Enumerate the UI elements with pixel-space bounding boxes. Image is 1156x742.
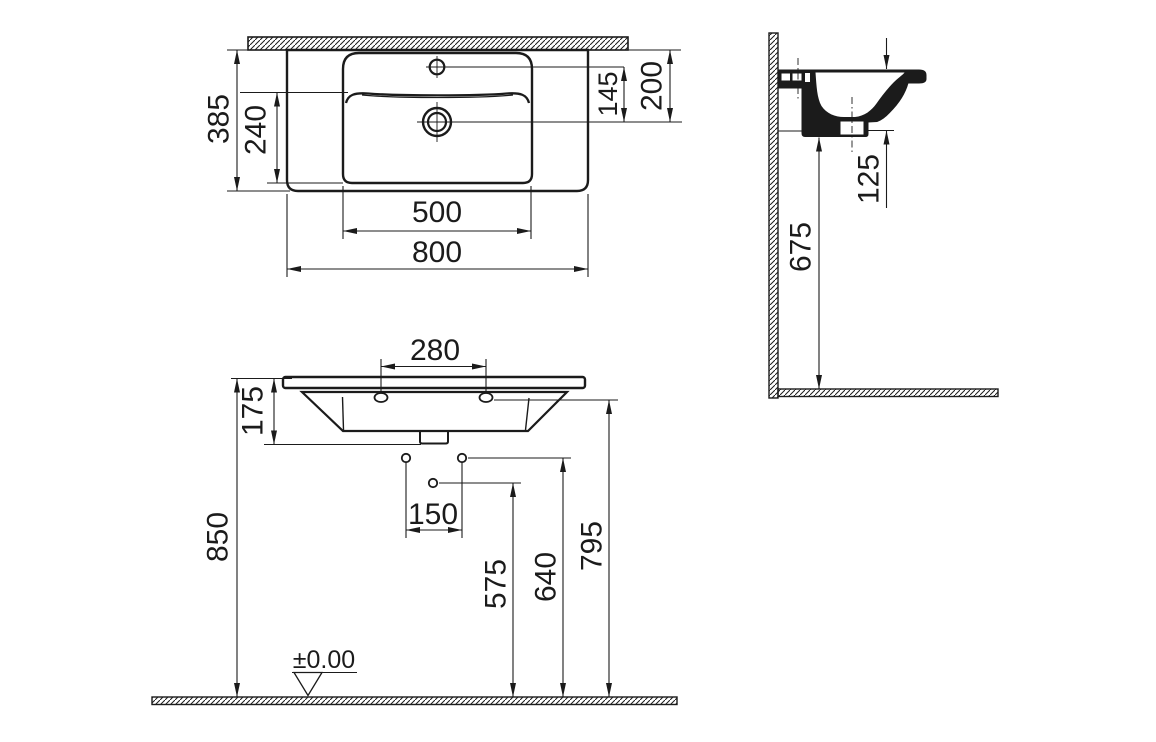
technical-drawing-canvas: 385 240 145 200 500 800 [0, 0, 1156, 742]
dim-640-label: 640 [530, 552, 563, 602]
mount-hole-right [458, 454, 466, 462]
dim-850-label: 850 [202, 512, 235, 562]
mount-hole-left [402, 454, 410, 462]
dim-800-label: 800 [412, 236, 462, 269]
dim-795-label: 795 [576, 521, 609, 571]
floor-datum-label: ±0.00 [293, 646, 355, 674]
floor-datum-symbol [292, 673, 357, 696]
rim-slot [805, 73, 810, 82]
floor-section-side-view [778, 389, 998, 397]
wall-section-side-view [769, 33, 778, 398]
front-view: 280 175 850 150 575 640 795 [152, 334, 677, 705]
dim-500-label: 500 [412, 196, 462, 229]
dim-150-label: 150 [408, 498, 458, 531]
drain-pipe-hole [429, 479, 437, 487]
floor-section-front-view [152, 697, 677, 705]
dim-240-label: 240 [240, 105, 273, 155]
dim-125-label: 125 [853, 154, 886, 204]
dim-280-label: 280 [410, 334, 460, 367]
datum-triangle-icon [294, 673, 322, 696]
washbasin-dimension-drawing: 385 240 145 200 500 800 [0, 0, 1156, 742]
wall-section-top-view [248, 37, 628, 50]
dim-675-label: 675 [785, 222, 818, 272]
dim-145-label: 145 [593, 71, 623, 116]
top-view: 385 240 145 200 500 800 [203, 37, 683, 277]
bowl-front-edge-left [343, 397, 344, 430]
side-view: 675 125 [769, 33, 998, 398]
dim-385-label: 385 [203, 94, 236, 144]
dim-575-label: 575 [480, 559, 513, 609]
rim-slab [283, 377, 585, 388]
drain-stub [420, 431, 448, 444]
dim-175-label: 175 [237, 386, 270, 436]
wall-bracket-slot-right [793, 74, 802, 81]
dim-200-label: 200 [636, 61, 669, 111]
wall-bracket-slot-left [782, 74, 791, 81]
